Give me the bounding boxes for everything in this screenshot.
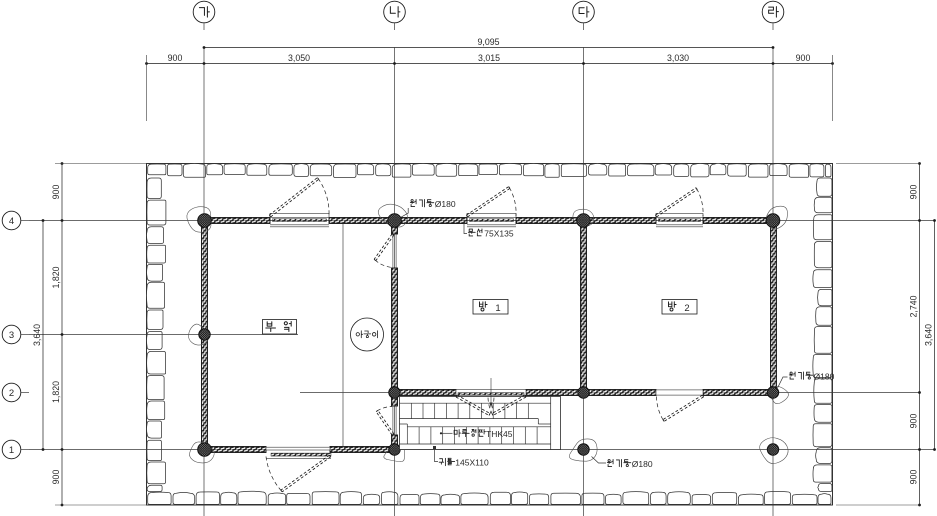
svg-text:900: 900 <box>168 53 183 63</box>
svg-text:9,095: 9,095 <box>477 37 499 47</box>
svg-text:2: 2 <box>684 303 689 314</box>
svg-text:2,740: 2,740 <box>909 295 919 317</box>
svg-text:1,820: 1,820 <box>51 266 61 288</box>
svg-text:3,030: 3,030 <box>667 53 689 63</box>
svg-text:1: 1 <box>9 445 14 456</box>
svg-text:1: 1 <box>495 303 500 314</box>
svg-text:3,050: 3,050 <box>288 53 310 63</box>
svg-text:900: 900 <box>909 414 919 429</box>
svg-text:1,820: 1,820 <box>51 381 61 403</box>
svg-text:145X110: 145X110 <box>455 458 489 468</box>
svg-text:4: 4 <box>9 216 14 227</box>
svg-text:900: 900 <box>51 470 61 485</box>
svg-text:Ø180: Ø180 <box>632 459 653 469</box>
svg-text:3: 3 <box>9 330 14 341</box>
svg-text:900: 900 <box>909 470 919 485</box>
svg-text:2: 2 <box>9 388 14 399</box>
svg-text:3,015: 3,015 <box>478 53 500 63</box>
svg-text:900: 900 <box>796 53 811 63</box>
svg-text:900: 900 <box>909 185 919 200</box>
svg-text:Ø180: Ø180 <box>814 371 835 381</box>
svg-text:THK45: THK45 <box>486 429 513 439</box>
svg-text:3,640: 3,640 <box>924 324 934 346</box>
svg-text:900: 900 <box>51 185 61 200</box>
svg-text:3,640: 3,640 <box>32 324 42 346</box>
svg-text:75X135: 75X135 <box>484 228 514 238</box>
svg-text:Ø180: Ø180 <box>435 199 456 209</box>
